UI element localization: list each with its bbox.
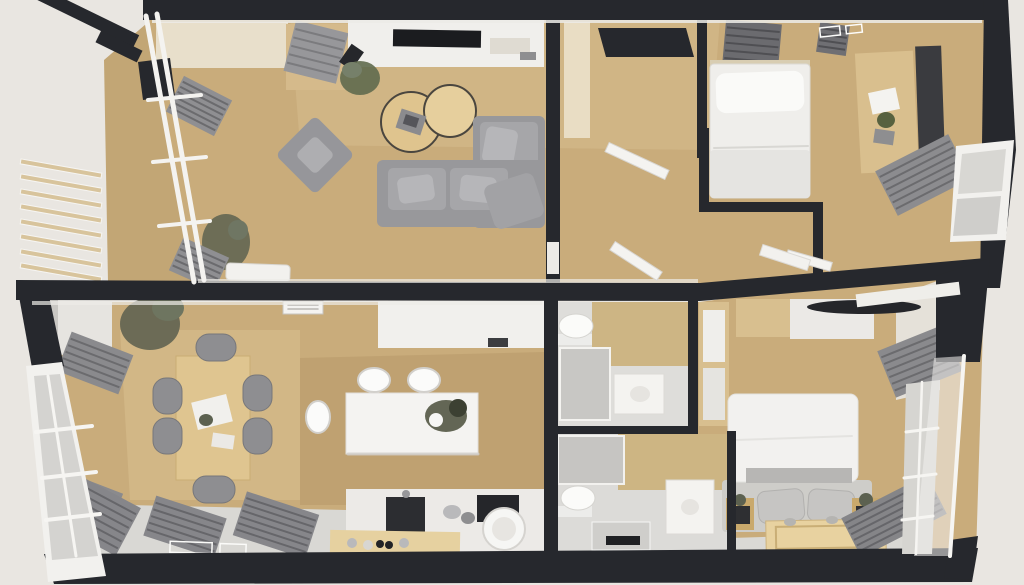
dining-chair-right: [243, 375, 272, 411]
kitchen-top-counter: [378, 301, 545, 348]
bath2-mat-stripe: [606, 536, 640, 545]
bath2-shower: [558, 436, 624, 484]
desk-decor: [873, 129, 895, 146]
bar-stool: [408, 368, 440, 392]
console-decor-item: [520, 52, 536, 60]
wall-face-mid-upper: [198, 279, 698, 283]
washing-machine-drum: [492, 517, 516, 541]
dining-chair-right: [243, 418, 272, 454]
wall-top: [143, 0, 1008, 20]
coffee-table-small: [424, 85, 476, 137]
bedroom1-window-glass: [958, 149, 1006, 194]
kitchen-faucet: [402, 490, 410, 498]
tv-flatscreen: [393, 29, 481, 48]
shelf-jar: [347, 538, 357, 548]
pergola-beam: [33, 0, 139, 47]
pergola-slat: [20, 234, 102, 253]
bath1-shower: [560, 348, 610, 420]
sofa-pillow: [396, 174, 435, 205]
island-vase: [429, 413, 443, 427]
bath2-sink: [681, 499, 699, 515]
console-decor-tray: [490, 38, 530, 54]
pergola-slat: [20, 189, 102, 208]
kitchen-sink: [386, 497, 425, 532]
living-plant-floor-leaf: [228, 220, 248, 240]
wall-bottom: [44, 548, 978, 584]
wall-kitchen-bath: [544, 300, 558, 557]
shelf-bottle-dark: [376, 540, 384, 548]
bath1-sink: [630, 386, 650, 402]
wall-hall-zig-vertical2: [813, 207, 823, 285]
living-plant-top-leaf: [342, 62, 362, 78]
bedroom2-pillow: [757, 488, 806, 524]
dining-chair-left: [153, 378, 182, 414]
shelf-jar: [363, 540, 373, 550]
desk-plant: [877, 112, 895, 128]
entry-door-canopy: [598, 28, 694, 57]
shelf-bottle-dark: [385, 541, 393, 549]
pergola-slat: [20, 204, 102, 223]
wall-bath-divider: [556, 426, 698, 434]
kitchen-counter-item: [488, 338, 508, 347]
bench-item: [784, 518, 796, 526]
dining-chair-bottom: [193, 476, 235, 503]
wall-mid-left: [16, 280, 700, 301]
shelf-jar: [399, 538, 409, 548]
wall-bath1-right: [688, 300, 698, 431]
island-plant-dark: [449, 399, 467, 417]
bath2-toilet: [561, 486, 595, 510]
bedroom1-window-glass: [953, 196, 1001, 236]
dining-chair-top: [196, 334, 236, 361]
bedroom2-blanket-band: [746, 468, 852, 483]
kitchen-pot: [443, 505, 461, 519]
table-centerpiece-plant: [199, 414, 213, 426]
wall-face-mid-lower: [32, 301, 542, 305]
wardrobe-door: [703, 310, 725, 362]
floorplan-canvas: [0, 0, 1024, 585]
living-hall-opening: [547, 242, 559, 274]
wall-hall-zig-vertical: [699, 128, 709, 208]
wardrobe-door: [703, 368, 725, 420]
bedroom1-duvet-foot: [710, 150, 810, 198]
bath1-toilet: [559, 314, 593, 338]
pergola-slat: [20, 159, 102, 178]
wall-hall-zig-horizontal: [699, 202, 823, 212]
living-window-bench: [156, 22, 288, 68]
bar-stool: [306, 401, 330, 433]
floor-plan-render: [0, 0, 1024, 585]
kitchen-pot-small: [461, 512, 475, 524]
bar-stool: [358, 368, 390, 392]
bedroom1-pillow: [715, 70, 804, 113]
bedroom2-top-cabinet-wood: [736, 299, 790, 337]
wall-bath2-right: [727, 431, 736, 557]
pergola-slat: [20, 174, 102, 193]
pergola-slat: [20, 219, 102, 238]
bench-item: [826, 516, 838, 524]
dining-chair-left: [153, 418, 182, 454]
entry-cabinet: [564, 22, 590, 138]
wall-face-top-inner: [152, 20, 982, 23]
